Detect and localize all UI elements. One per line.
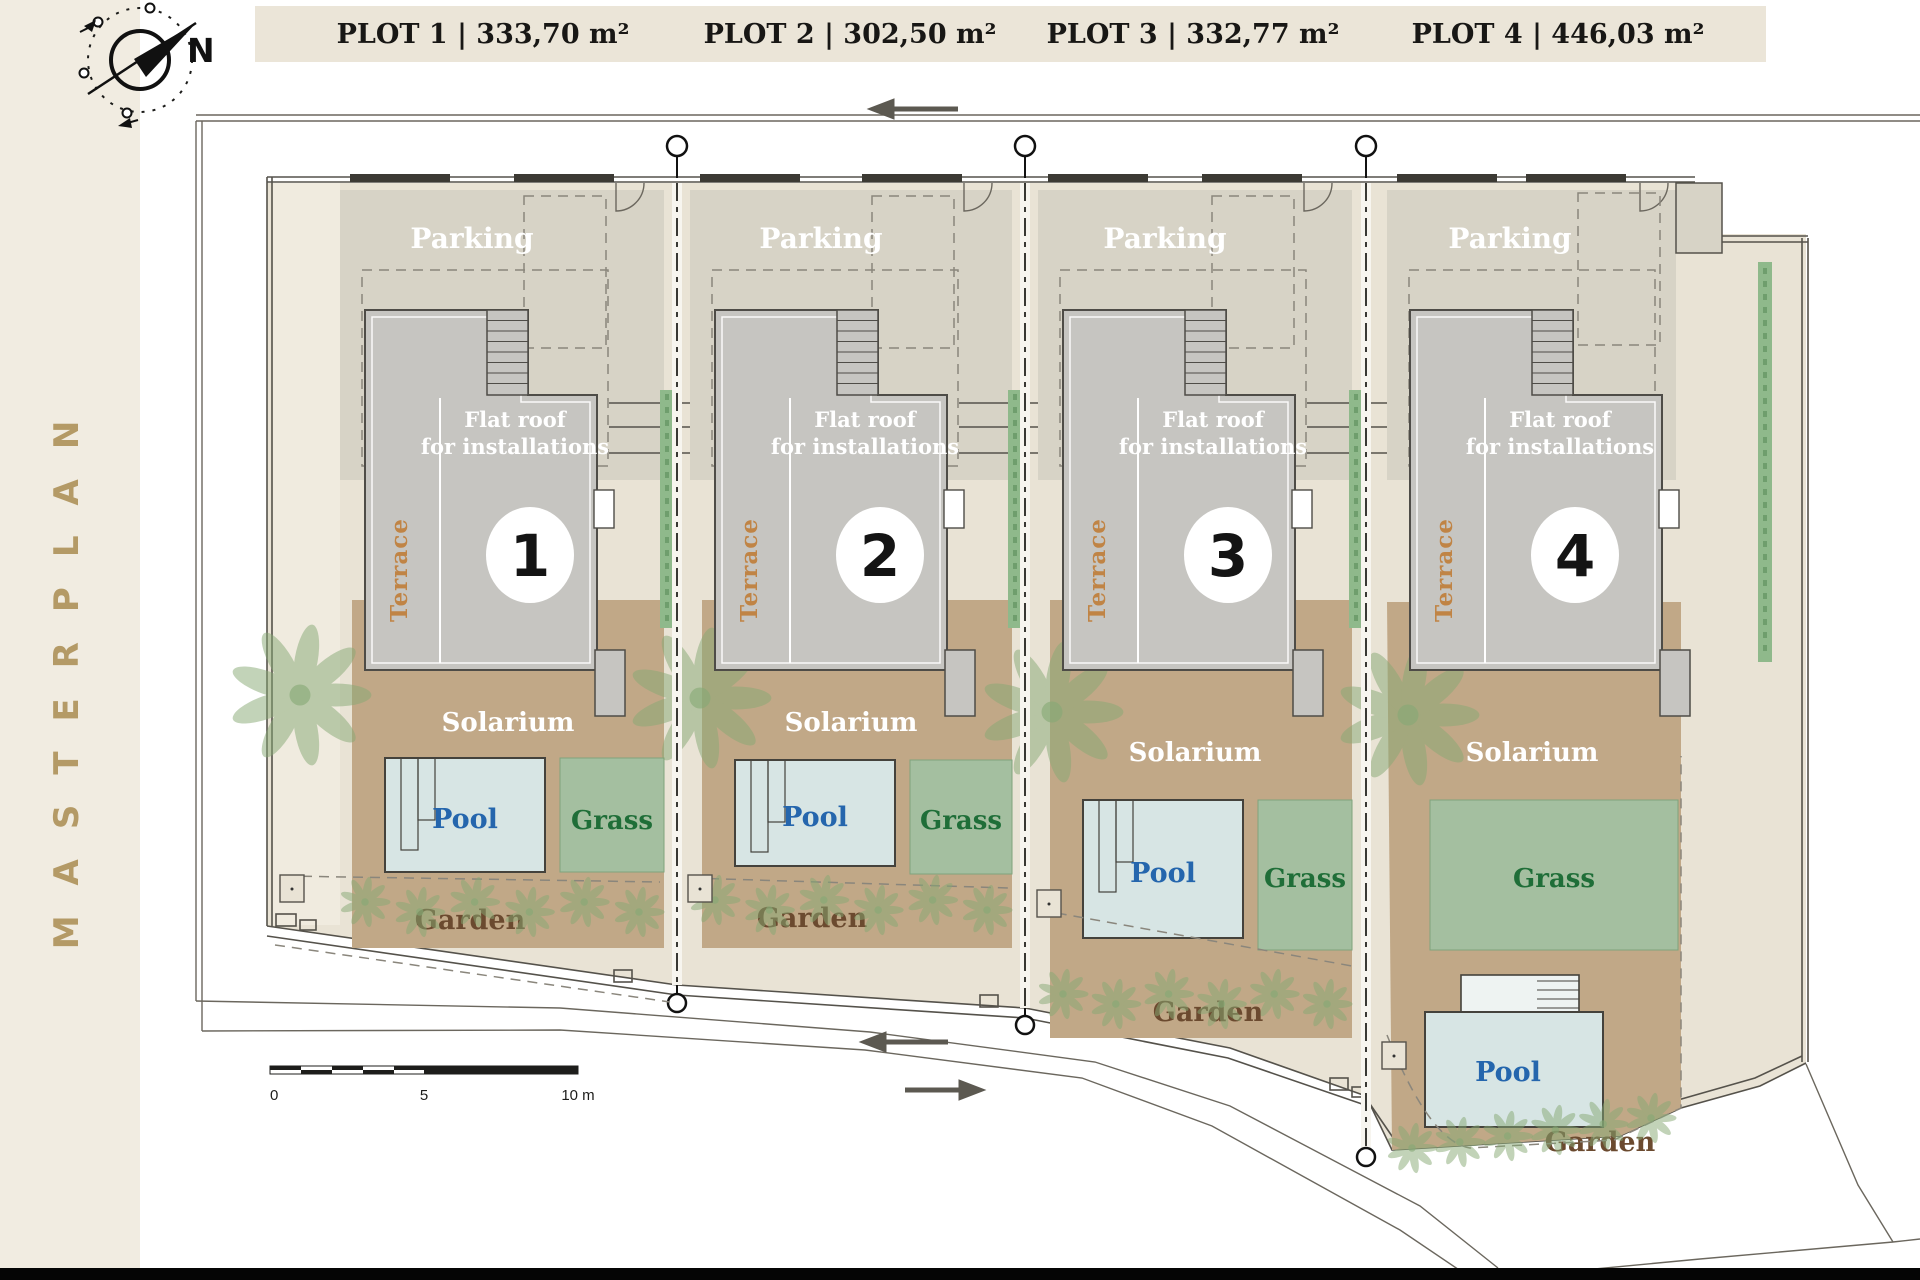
header-plot-4: PLOT 4 | 446,03 m² [1412,19,1705,50]
side-door-tab [1292,490,1312,528]
boundary-wall-block [1676,183,1722,253]
gate-bar [700,174,800,182]
flat-roof-label-line2: for installations [771,434,959,459]
flat-roof-label-line1: Flat roof [1509,407,1613,432]
terrace-label: Terrace [1084,518,1111,622]
survey-point [667,136,687,156]
masterplan-drawing: MASTERPLAN PLOT 1 | 333,70 m² PLOT 2 | 3… [0,0,1920,1280]
side-door-tab [1659,490,1679,528]
porch-post [945,650,975,716]
gate-bar [350,174,450,182]
porch-post [1660,650,1690,716]
pool-label: Pool [432,804,498,835]
terrace-label: Terrace [1431,518,1458,622]
porch-post [1293,650,1323,716]
parking-label: Parking [410,222,533,255]
survey-point [1015,136,1035,156]
solarium-label: Solarium [1466,738,1599,768]
grass-label: Grass [571,806,653,836]
flat-roof-label-line1: Flat roof [814,407,918,432]
villa-number: 3 [1208,522,1248,590]
gate-bar [1397,174,1497,182]
utility-box-dot [291,888,294,891]
gate-bar [1526,174,1626,182]
flat-roof-label-line2: for installations [421,434,609,459]
survey-point [1357,1148,1375,1166]
pool-label: Pool [1130,858,1196,889]
grass-label: Grass [1513,864,1595,894]
solarium-label: Solarium [1129,738,1262,768]
villa-number: 4 [1555,522,1595,590]
masterplan-page: MASTERPLAN PLOT 1 | 333,70 m² PLOT 2 | 3… [0,0,1920,1280]
gate-bar [1048,174,1148,182]
header-plot-2: PLOT 2 | 302,50 m² [704,19,997,50]
bottom-black-bar [0,1268,1920,1280]
terrace-label: Terrace [736,518,763,622]
grass-label: Grass [1264,864,1346,894]
gate-bar [862,174,962,182]
compass-north-label: N [187,31,215,70]
scale-tick-0: 0 [270,1087,278,1104]
solarium-label: Solarium [442,708,575,738]
scale-tick-5: 5 [420,1087,428,1104]
pool-label: Pool [782,802,848,833]
porch-post [595,650,625,716]
scale-tick-10: 10 m [561,1087,594,1104]
terrace-label: Terrace [386,518,413,622]
side-door-tab [944,490,964,528]
pool-label: Pool [1475,1057,1541,1088]
flat-roof-label-line2: for installations [1466,434,1654,459]
parking-label: Parking [759,222,882,255]
gate-bar [1202,174,1302,182]
parking-label: Parking [1103,222,1226,255]
grass-label: Grass [920,806,1002,836]
survey-point [1356,136,1376,156]
utility-box-dot [1048,903,1051,906]
header-plot-1: PLOT 1 | 333,70 m² [337,19,630,50]
gate-bar [514,174,614,182]
flat-roof-label-line2: for installations [1119,434,1307,459]
survey-point [1016,1016,1034,1034]
flat-roof-label-line1: Flat roof [1162,407,1266,432]
utility-box-dot [699,888,702,891]
parking-label: Parking [1448,222,1571,255]
utility-box-dot [1393,1055,1396,1058]
plot1-entry-strip [272,183,340,925]
sidebar-title: MASTERPLAN [47,391,87,950]
flat-roof-label-line1: Flat roof [464,407,568,432]
side-door-tab [594,490,614,528]
solarium-label: Solarium [785,708,918,738]
survey-point [668,994,686,1012]
header-plot-3: PLOT 3 | 332,77 m² [1047,19,1340,50]
villa-number: 1 [510,522,550,590]
villa-number: 2 [860,522,900,590]
